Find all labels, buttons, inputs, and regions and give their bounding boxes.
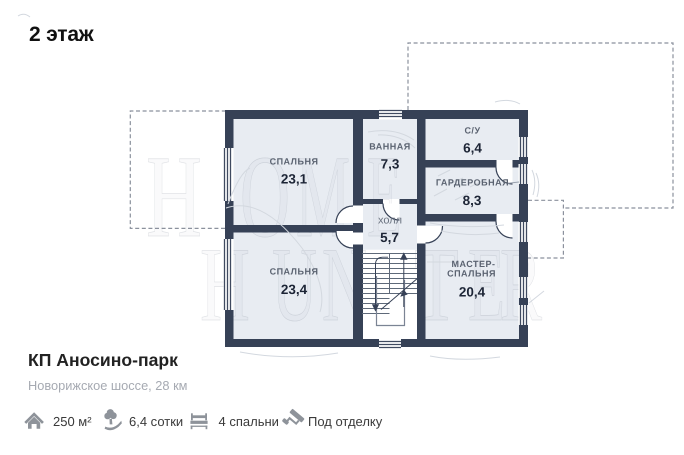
svg-text:4 спальни: 4 спальни: [219, 414, 279, 429]
svg-text:6,4 сотки: 6,4 сотки: [129, 414, 183, 429]
svg-text:Под отделку: Под отделку: [308, 414, 383, 429]
svg-text:250 м²: 250 м²: [53, 414, 92, 429]
